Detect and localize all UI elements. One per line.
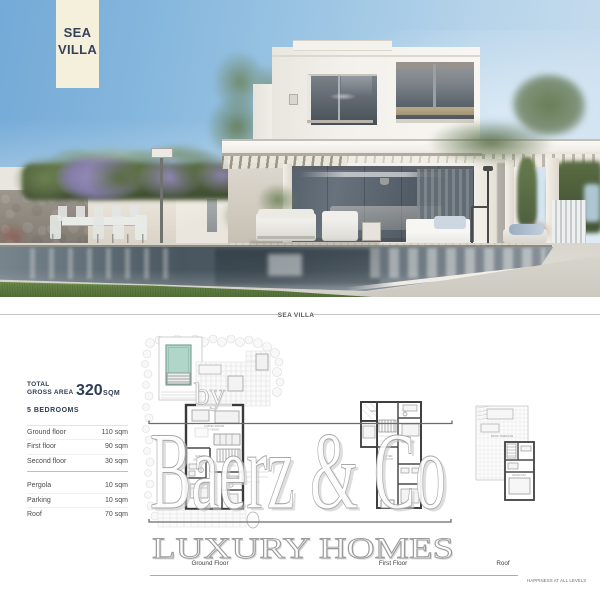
svg-text:Baerz & Co: Baerz & Co [150, 410, 446, 532]
svg-text:ROOF TERRACE: ROOF TERRACE [491, 434, 513, 438]
svg-text:by: by [194, 376, 226, 411]
svg-text:BEDROOM: BEDROOM [512, 473, 525, 477]
svg-text:LUXURY HOMES: LUXURY HOMES [152, 532, 454, 565]
